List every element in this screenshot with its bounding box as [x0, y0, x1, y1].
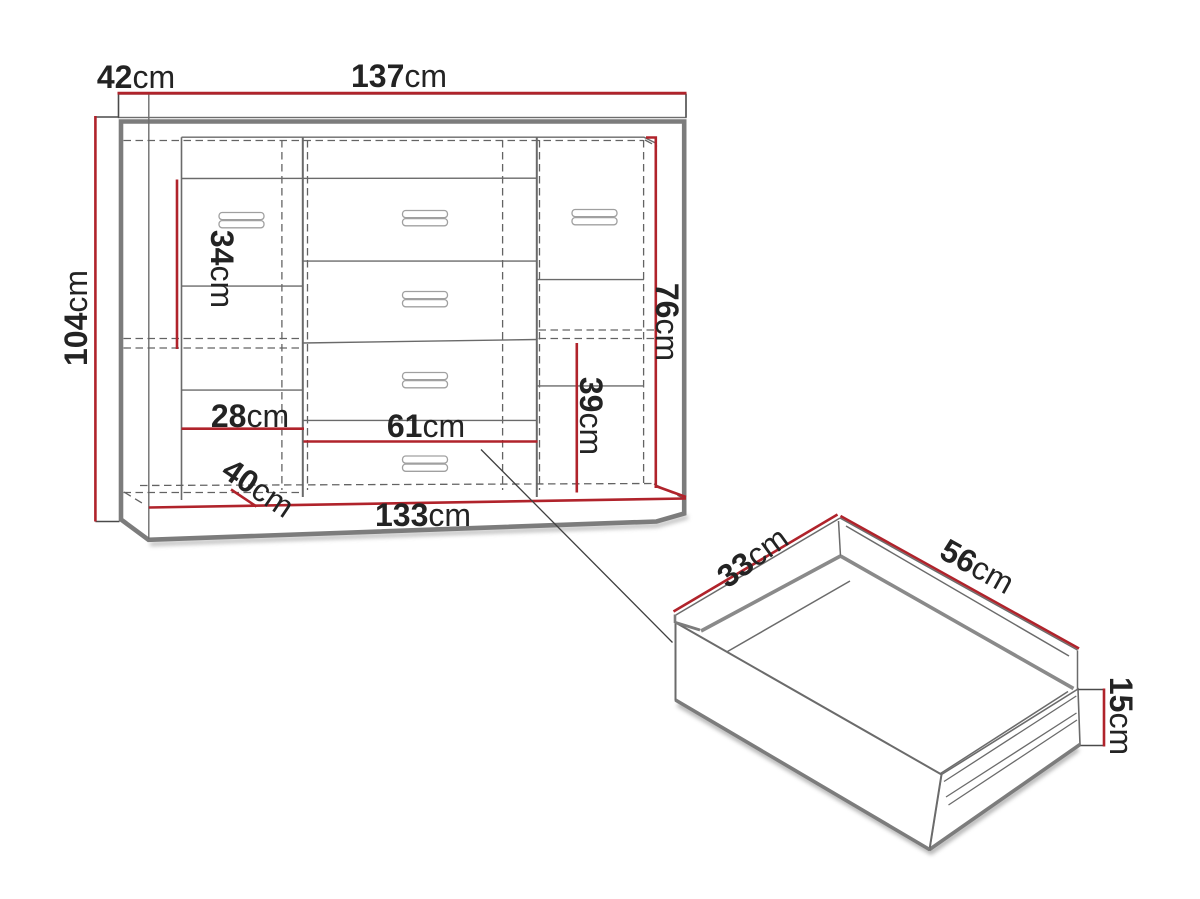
svg-text:104cm: 104cm	[58, 270, 94, 366]
svg-text:76cm: 76cm	[649, 283, 685, 361]
svg-text:33cm: 33cm	[710, 520, 794, 595]
svg-text:34cm: 34cm	[204, 230, 240, 308]
svg-text:133cm: 133cm	[375, 497, 471, 533]
svg-text:137cm: 137cm	[351, 58, 447, 94]
svg-text:61cm: 61cm	[387, 408, 465, 444]
svg-text:39cm: 39cm	[573, 377, 609, 455]
svg-text:15cm: 15cm	[1103, 677, 1139, 755]
svg-text:28cm: 28cm	[211, 398, 289, 434]
svg-text:42cm: 42cm	[97, 59, 175, 95]
